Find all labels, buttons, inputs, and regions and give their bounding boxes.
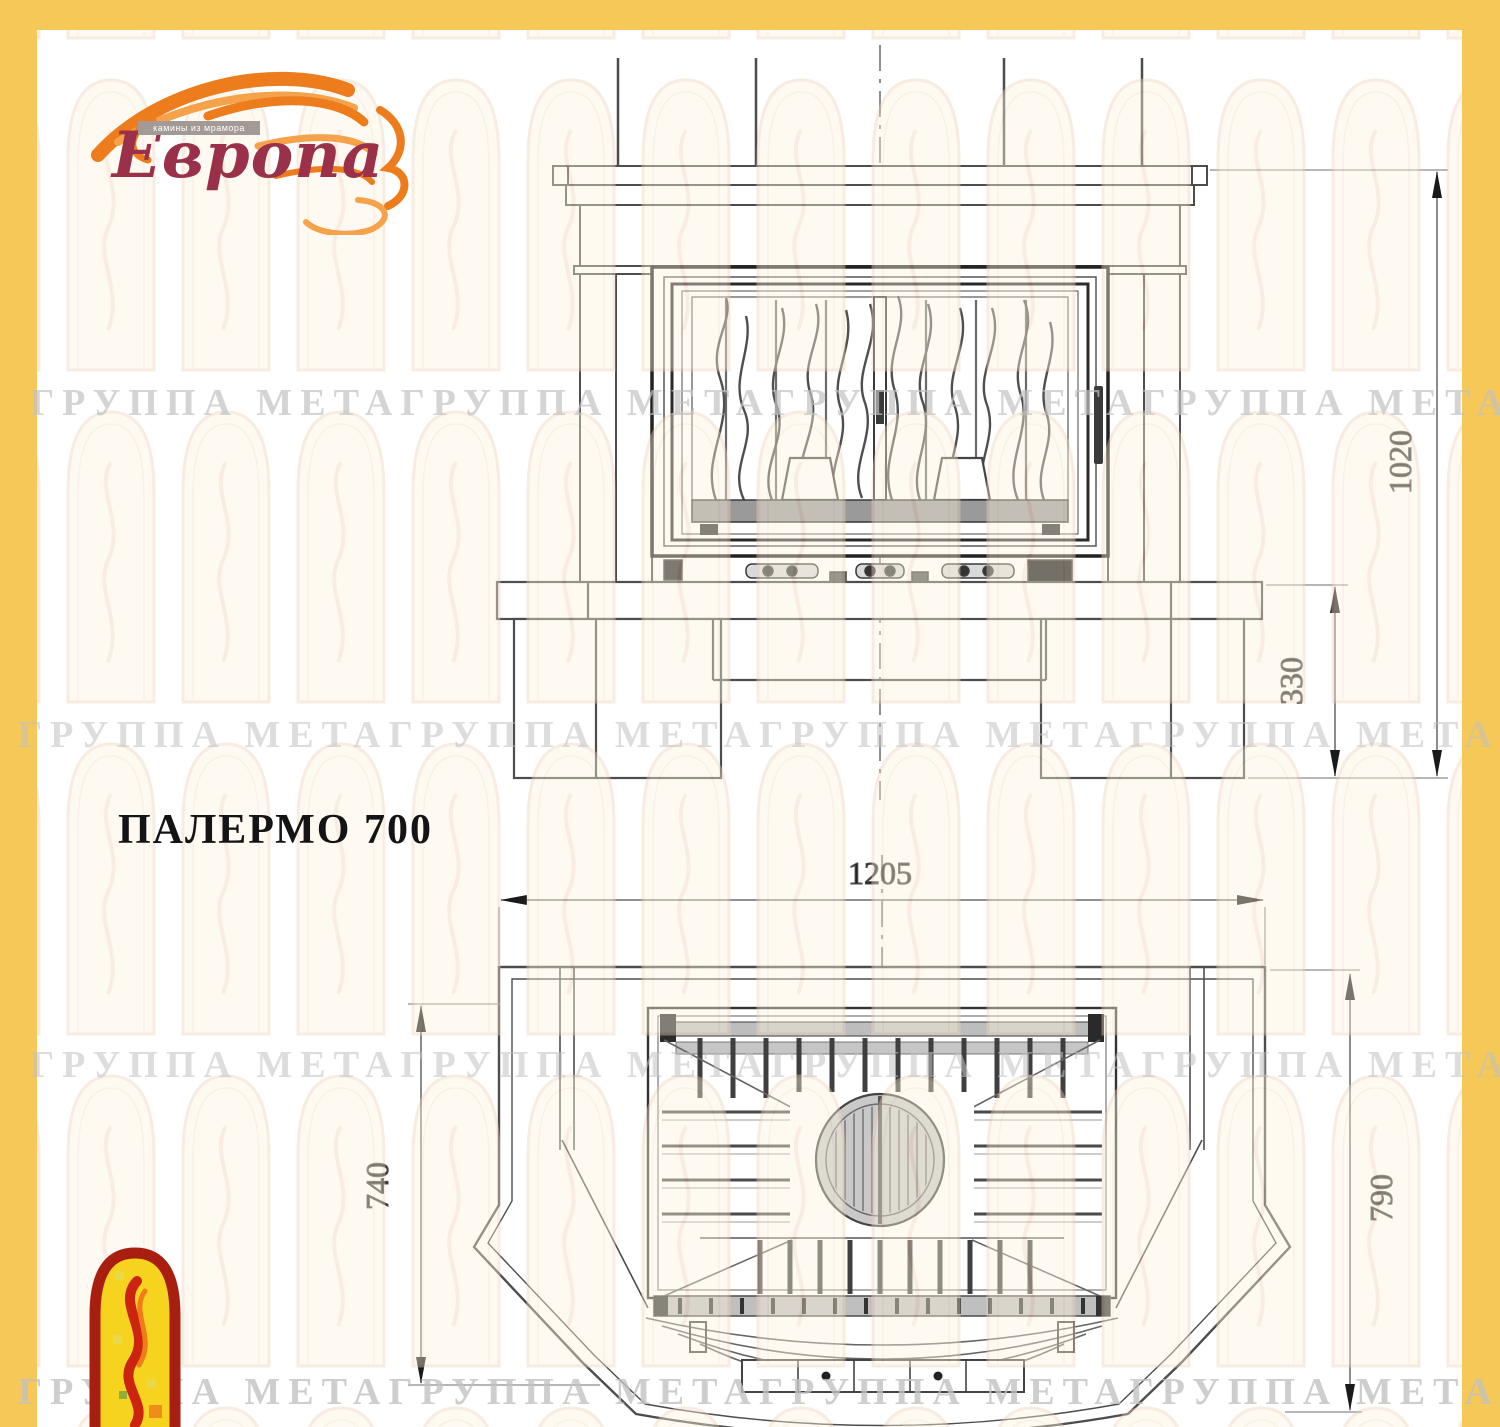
front-view: 1020 330 bbox=[497, 45, 1448, 800]
dim-label-width: 1205 bbox=[848, 855, 912, 891]
dim-label-depth-left: 740 bbox=[359, 1162, 395, 1210]
plan-view: 1205 740 790 bbox=[359, 855, 1399, 1427]
plan-insert bbox=[648, 1008, 1116, 1316]
hearth-shelf bbox=[497, 582, 1262, 619]
right-pillar bbox=[1102, 266, 1186, 582]
dim-label-height-total: 1020 bbox=[1382, 430, 1418, 494]
product-title: ПАЛЕРМО 700 bbox=[118, 806, 433, 854]
dim-label-depth-right: 790 bbox=[1363, 1174, 1399, 1222]
flame-emblem-icon bbox=[85, 1243, 185, 1427]
page: 1020 330 bbox=[0, 0, 1500, 1427]
mantel-shelf bbox=[553, 166, 1207, 266]
dim-label-hearth-height: 330 bbox=[1273, 657, 1309, 705]
control-strip bbox=[664, 560, 1072, 582]
ash-pan-bar bbox=[692, 500, 1068, 522]
dimension-depth-790 bbox=[1270, 970, 1362, 1412]
corner-emblem bbox=[85, 1243, 185, 1427]
door-handle bbox=[1094, 386, 1103, 464]
left-pillar bbox=[574, 266, 658, 582]
oval-grate bbox=[816, 1094, 944, 1226]
firebox-insert bbox=[652, 267, 1108, 556]
brand-tagline: камины из мрамора bbox=[138, 121, 260, 135]
front-vent-strip bbox=[742, 1360, 1024, 1392]
frieze-band bbox=[580, 205, 1180, 266]
